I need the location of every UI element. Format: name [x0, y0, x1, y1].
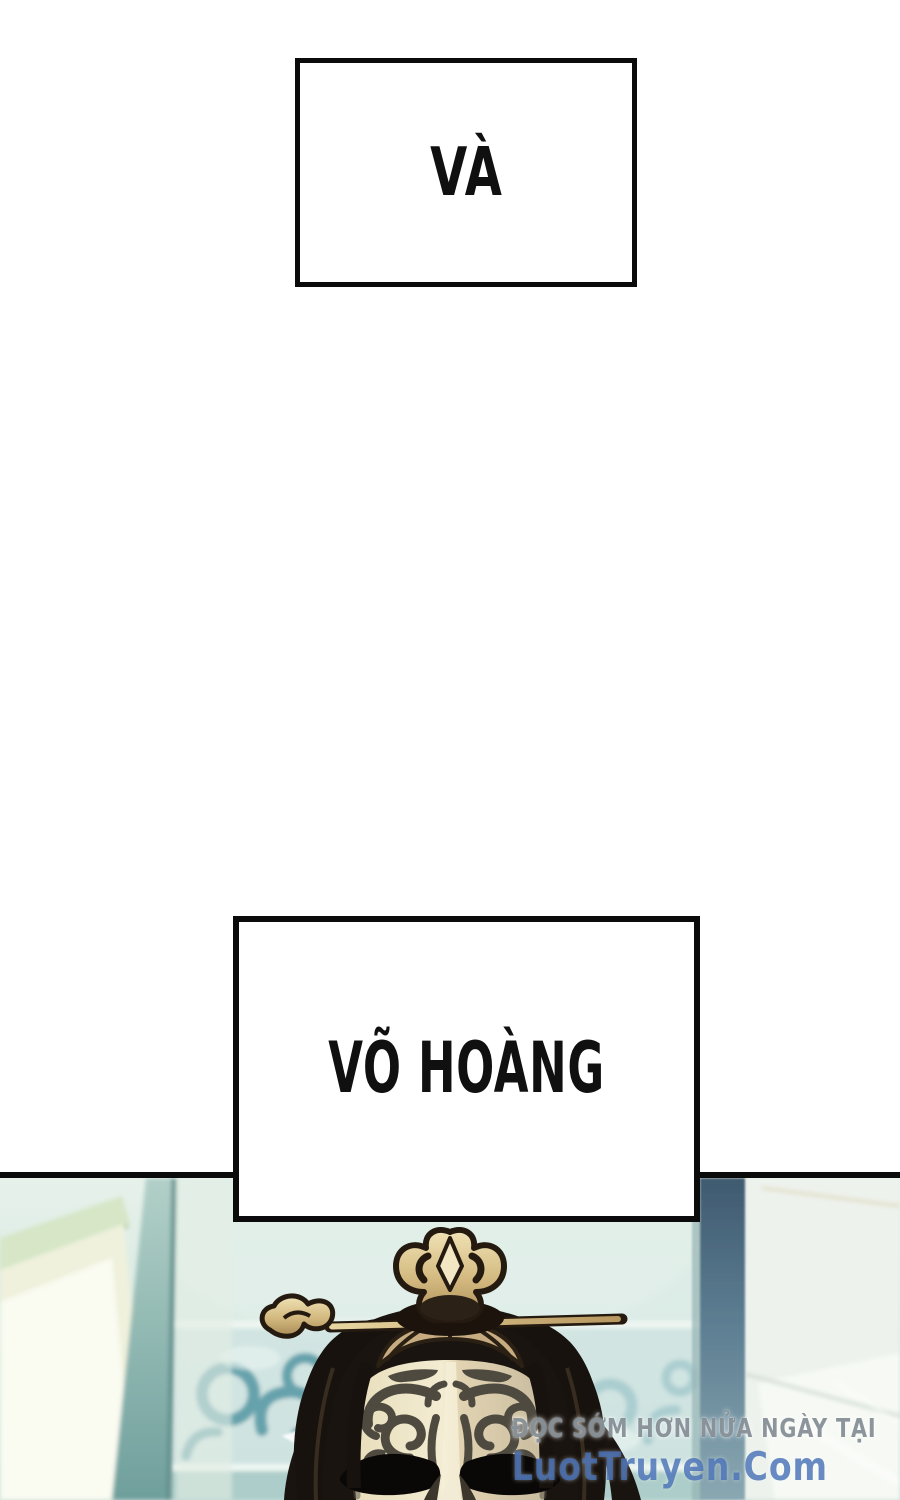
wall-pillar	[692, 1178, 745, 1500]
caption-box-va: VÀ	[295, 58, 637, 287]
right-wall	[738, 1178, 900, 1500]
crown-ornament	[396, 1230, 504, 1336]
caption-text-vo-hoang: VÕ HOÀNG	[328, 1034, 605, 1105]
panel-artwork	[0, 1178, 900, 1500]
comic-page: VÀ VÕ HOÀNG	[0, 0, 900, 1500]
caption-box-vo-hoang: VÕ HOÀNG	[233, 916, 700, 1222]
folding-screen	[0, 1178, 232, 1500]
caption-text-va: VÀ	[430, 139, 503, 206]
